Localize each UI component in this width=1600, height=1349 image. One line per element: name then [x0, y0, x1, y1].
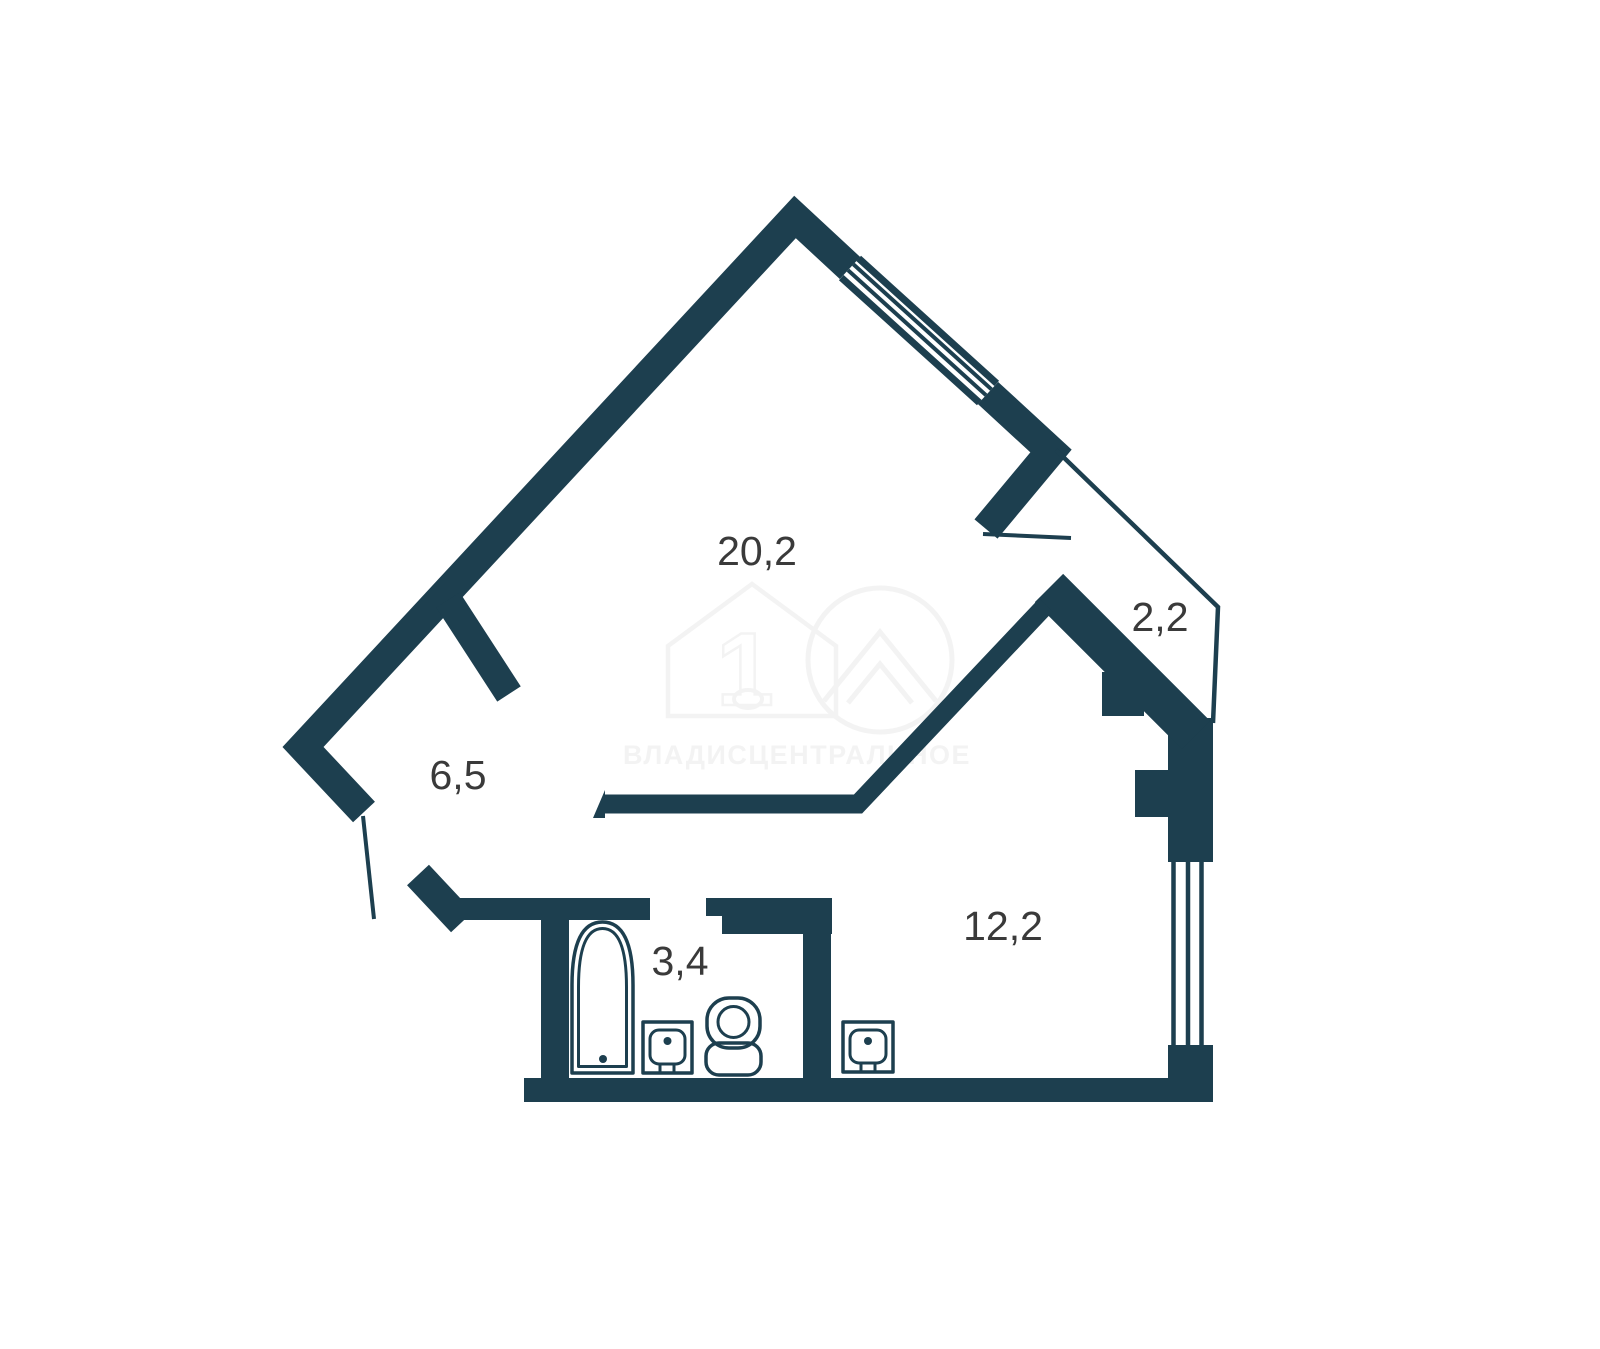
entrance-door-leaf	[363, 816, 374, 919]
fixtures	[572, 922, 893, 1075]
bathtub-inner	[579, 929, 627, 1067]
kitchen-sink-icon	[843, 1022, 893, 1072]
floor-plan-canvas: 1 ВЛАДИСЦЕНТРАЛЬНОЕ	[0, 0, 1600, 1349]
bathtub-outer	[572, 922, 633, 1073]
wall-pier-lower	[1135, 770, 1168, 817]
bathtub-drain	[599, 1055, 607, 1063]
wall-bathroom-left	[541, 898, 569, 1078]
room-label-balcony: 2,2	[1132, 594, 1189, 640]
watermark-circle-icon	[808, 588, 952, 732]
watermark-roof-inner-icon	[848, 664, 912, 703]
sink-drain	[664, 1037, 672, 1045]
wall-pier-upper	[1102, 672, 1144, 716]
window-top-right	[841, 258, 996, 402]
toilet-bowl-circle	[718, 1007, 749, 1038]
room-label-kitchen: 12,2	[963, 903, 1043, 949]
bathtub-icon	[572, 922, 633, 1073]
bath-sink-icon	[643, 1022, 692, 1073]
wall-bottom	[524, 1078, 1213, 1102]
window-edge-line	[859, 258, 997, 383]
wall-hallway-divider	[448, 600, 509, 694]
sink-inner	[650, 1030, 685, 1064]
room-label-living: 20,2	[717, 528, 797, 574]
watermark-logo-number: 1	[716, 612, 774, 728]
toilet-icon	[706, 998, 761, 1075]
wall-bathroom-kitchen-divider	[803, 898, 831, 1078]
wall-outer-topright-lower	[986, 393, 1051, 529]
sink-drain	[864, 1037, 872, 1045]
room-label-bathroom: 3,4	[652, 938, 709, 984]
window-edge-line	[841, 278, 979, 403]
window-glass-line	[848, 270, 986, 395]
window-right	[1174, 862, 1202, 1045]
wall-partition-cap	[593, 790, 605, 818]
room-label-hallway: 6,5	[430, 752, 487, 798]
sink-inner	[850, 1030, 886, 1063]
window-glass-line	[853, 264, 991, 389]
